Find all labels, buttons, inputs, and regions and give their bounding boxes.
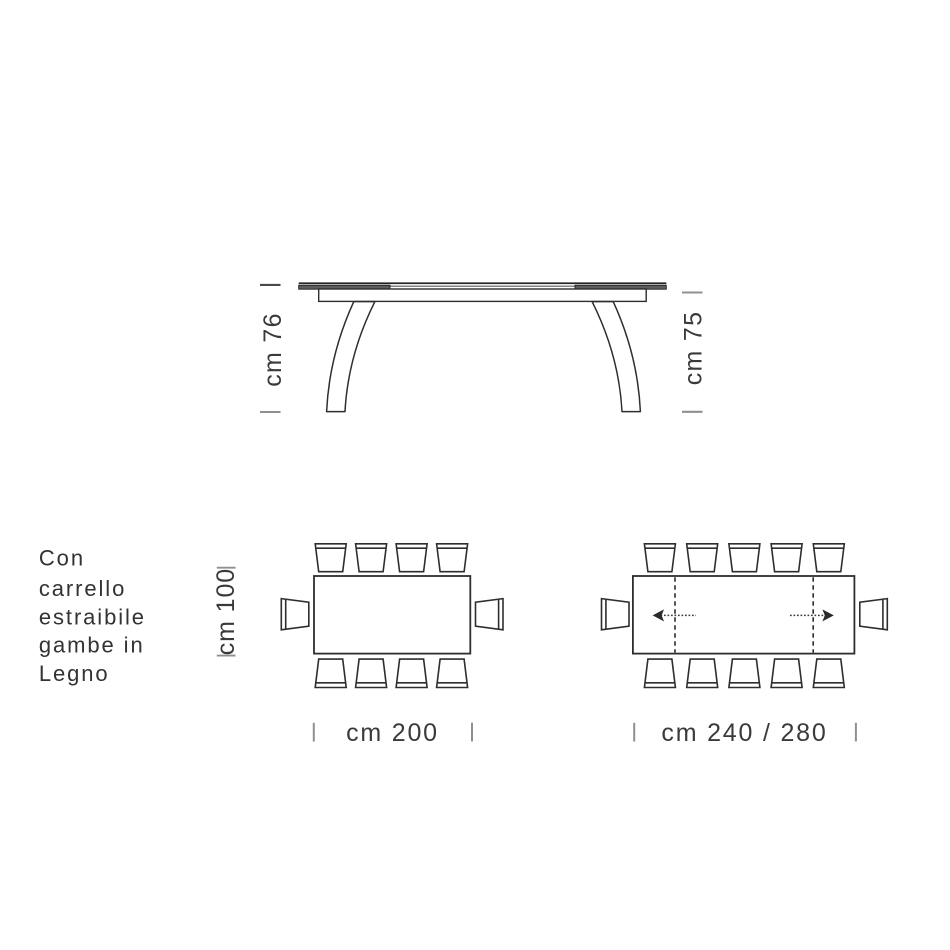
svg-text:Legno: Legno (39, 661, 110, 686)
svg-text:Con: Con (39, 545, 85, 570)
svg-text:carrello: carrello (39, 576, 126, 601)
svg-text:cm 76: cm 76 (259, 312, 287, 387)
svg-text:cm 240 / 280: cm 240 / 280 (661, 719, 827, 747)
svg-text:estraibile: estraibile (39, 604, 146, 629)
svg-text:cm 200: cm 200 (346, 719, 439, 747)
svg-text:cm 75: cm 75 (680, 311, 708, 386)
svg-text:cm 100: cm 100 (212, 568, 240, 655)
svg-text:gambe in: gambe in (39, 633, 145, 658)
